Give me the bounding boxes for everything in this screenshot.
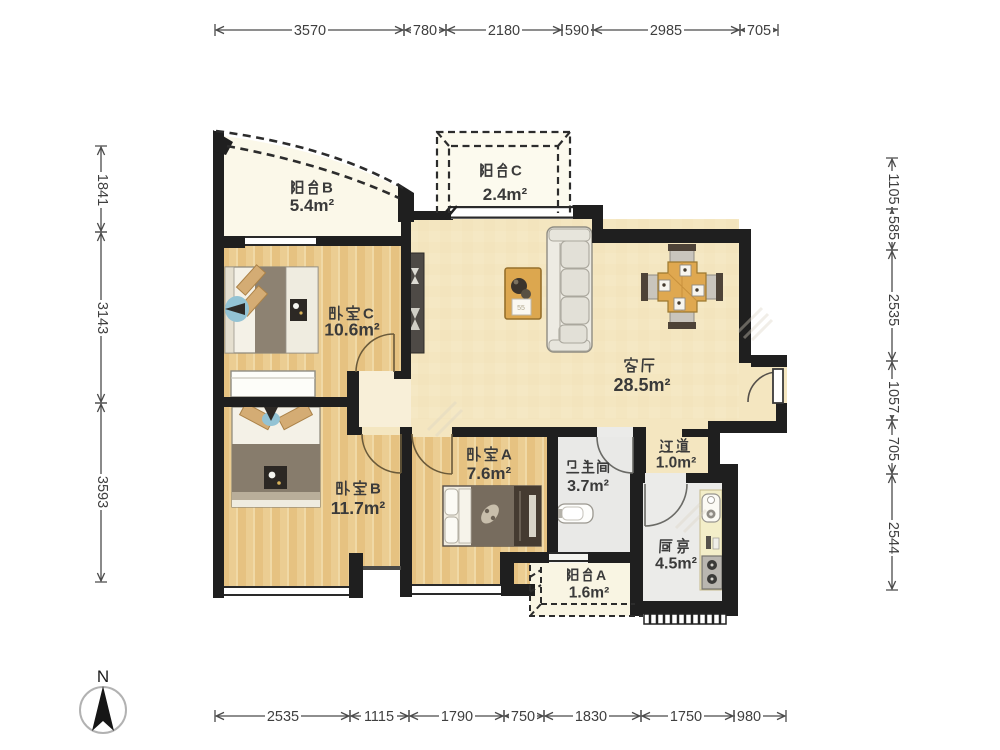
svg-text:1.0m²: 1.0m² <box>656 455 697 472</box>
svg-text:1057: 1057 <box>885 381 901 413</box>
svg-text:2985: 2985 <box>650 23 682 39</box>
svg-text:5.4m²: 5.4m² <box>290 196 335 215</box>
svg-text:N: N <box>97 667 109 686</box>
svg-text:3143: 3143 <box>94 302 110 334</box>
svg-text:1750: 1750 <box>670 709 702 725</box>
svg-text:A: A <box>501 447 512 464</box>
svg-text:980: 980 <box>737 709 761 725</box>
svg-text:780: 780 <box>413 23 437 39</box>
svg-text:585: 585 <box>885 216 901 240</box>
svg-text:2544: 2544 <box>885 522 901 554</box>
svg-text:10.6m²: 10.6m² <box>324 320 380 340</box>
svg-text:28.5m²: 28.5m² <box>613 375 670 395</box>
svg-text:1105: 1105 <box>885 173 901 204</box>
svg-text:1.6m²: 1.6m² <box>569 585 610 602</box>
svg-text:590: 590 <box>565 23 589 39</box>
svg-text:2535: 2535 <box>267 709 299 725</box>
svg-text:750: 750 <box>511 709 535 725</box>
svg-text:3.7m²: 3.7m² <box>567 478 609 495</box>
svg-text:B: B <box>370 481 381 498</box>
svg-text:4.5m²: 4.5m² <box>655 556 697 573</box>
svg-text:11.7m²: 11.7m² <box>331 498 386 518</box>
svg-text:3570: 3570 <box>294 23 326 39</box>
svg-text:3593: 3593 <box>94 476 110 508</box>
svg-text:A: A <box>596 567 606 583</box>
svg-text:1115: 1115 <box>364 709 394 725</box>
svg-text:2.4m²: 2.4m² <box>483 185 528 204</box>
svg-text:7.6m²: 7.6m² <box>467 464 512 483</box>
svg-text:2535: 2535 <box>885 294 901 326</box>
svg-text:C: C <box>511 163 522 180</box>
svg-text:1790: 1790 <box>441 709 473 725</box>
svg-text:705: 705 <box>747 23 771 39</box>
svg-text:1830: 1830 <box>575 709 607 725</box>
svg-text:2180: 2180 <box>488 23 520 39</box>
svg-text:B: B <box>322 180 333 197</box>
svg-text:55: 55 <box>517 305 525 312</box>
svg-text:705: 705 <box>885 437 901 461</box>
svg-text:1841: 1841 <box>94 174 110 206</box>
